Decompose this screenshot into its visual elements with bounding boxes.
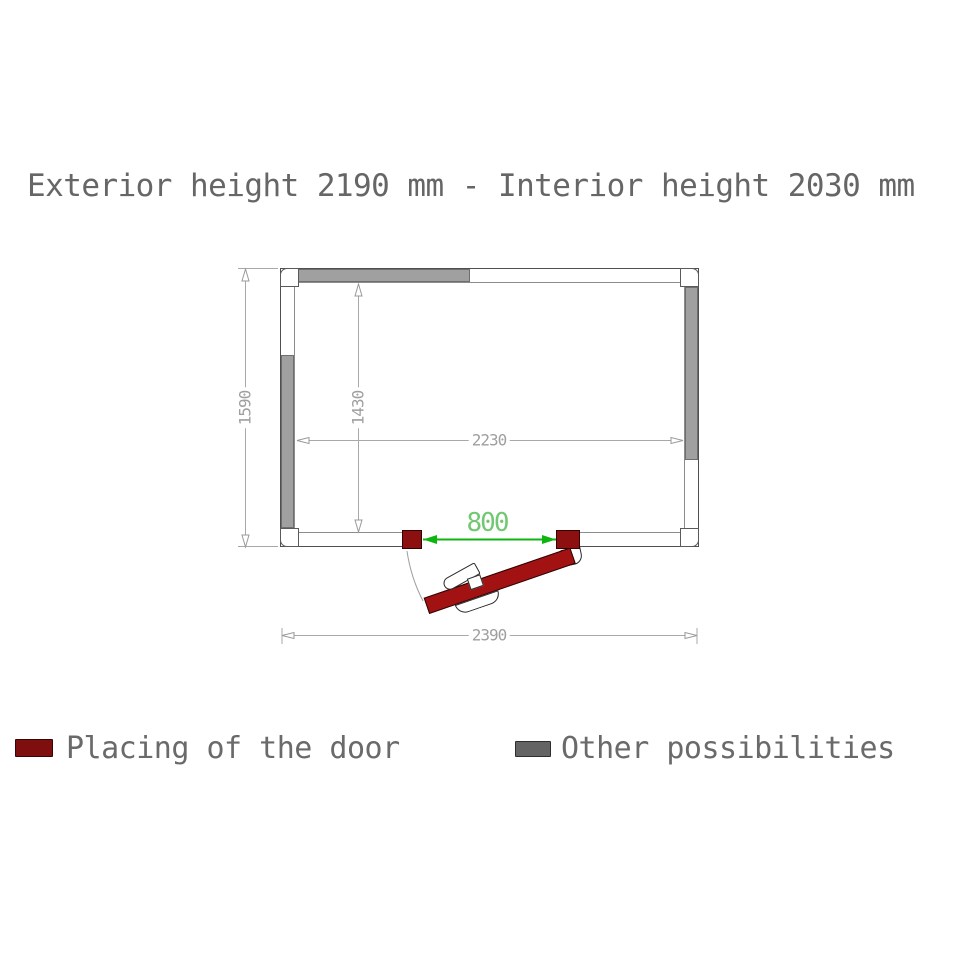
- corner-panel-bottom-left: [280, 528, 299, 547]
- arrow-down-1590: [242, 535, 249, 547]
- corner-panel-top-right: [680, 268, 699, 287]
- dim-label-interior-depth: 1430: [349, 388, 368, 429]
- other-door-possibility-wall-top: [298, 269, 470, 282]
- arrow-left-2390: [282, 633, 294, 639]
- legend-swatch-other-possibilities: [515, 741, 551, 757]
- legend-swatch-door: [15, 739, 53, 757]
- door-post-left: [402, 530, 422, 549]
- door-handle-base: [467, 574, 484, 590]
- dim-label-door-width: 800: [464, 508, 511, 538]
- dim-label-interior-width: 2230: [469, 431, 510, 450]
- door-post-right: [556, 530, 580, 549]
- dim-label-exterior-depth: 1590: [236, 388, 255, 429]
- arrow-right-2390: [685, 633, 697, 639]
- door-latch-strap: [455, 590, 502, 615]
- other-door-possibility-wall-right: [685, 287, 698, 460]
- page-title: Exterior height 2190 mm - Interior heigh…: [27, 168, 915, 204]
- legend-label-other-possibilities: Other possibilities: [561, 731, 895, 766]
- door-leaf: [424, 547, 576, 614]
- dim-label-exterior-width: 2390: [469, 626, 510, 645]
- other-door-possibility-wall-left: [281, 355, 294, 528]
- corner-panel-bottom-right: [680, 528, 699, 547]
- door-swing-arc: [407, 551, 423, 601]
- arrow-up-1590: [242, 269, 249, 281]
- corner-panel-top-left: [280, 268, 299, 287]
- legend-label-door: Placing of the door: [66, 731, 400, 766]
- floor-plan-diagram: Exterior height 2190 mm - Interior heigh…: [0, 0, 960, 960]
